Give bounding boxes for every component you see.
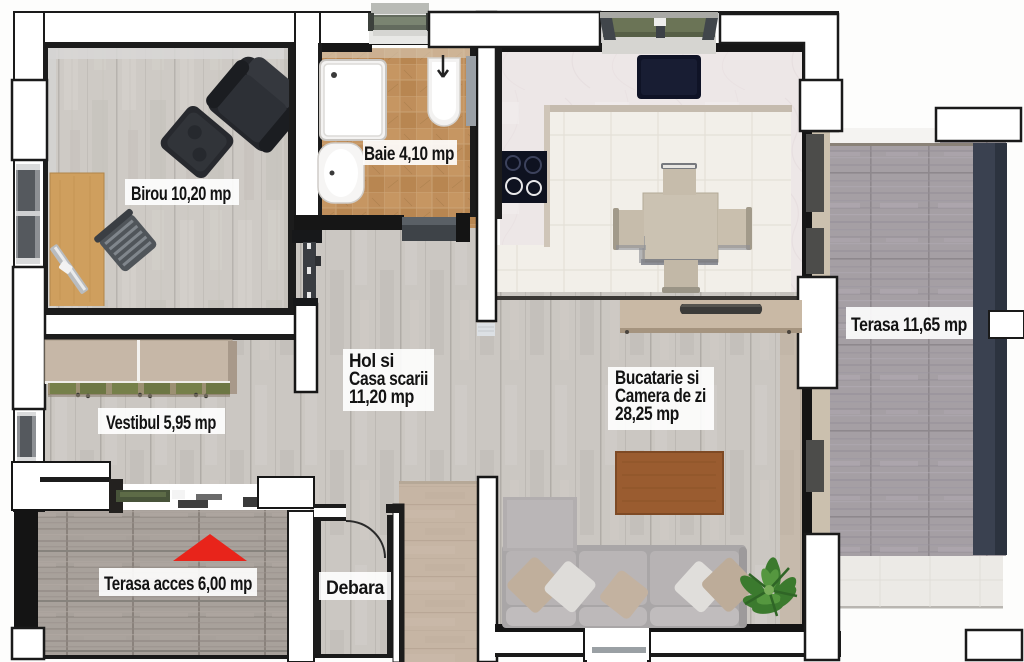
svg-text:Birou 10,20 mp: Birou 10,20 mp	[131, 184, 231, 205]
svg-text:Debara: Debara	[326, 578, 385, 599]
svg-text:Baie 4,10 mp: Baie 4,10 mp	[364, 144, 454, 165]
svg-text:Terasa acces 6,00 mp: Terasa acces 6,00 mp	[104, 574, 252, 595]
svg-text:28,25 mp: 28,25 mp	[615, 404, 679, 425]
svg-text:Vestibul 5,95 mp: Vestibul 5,95 mp	[106, 413, 216, 434]
svg-text:Terasa 11,65 mp: Terasa 11,65 mp	[851, 315, 967, 336]
svg-text:11,20 mp: 11,20 mp	[349, 387, 414, 408]
